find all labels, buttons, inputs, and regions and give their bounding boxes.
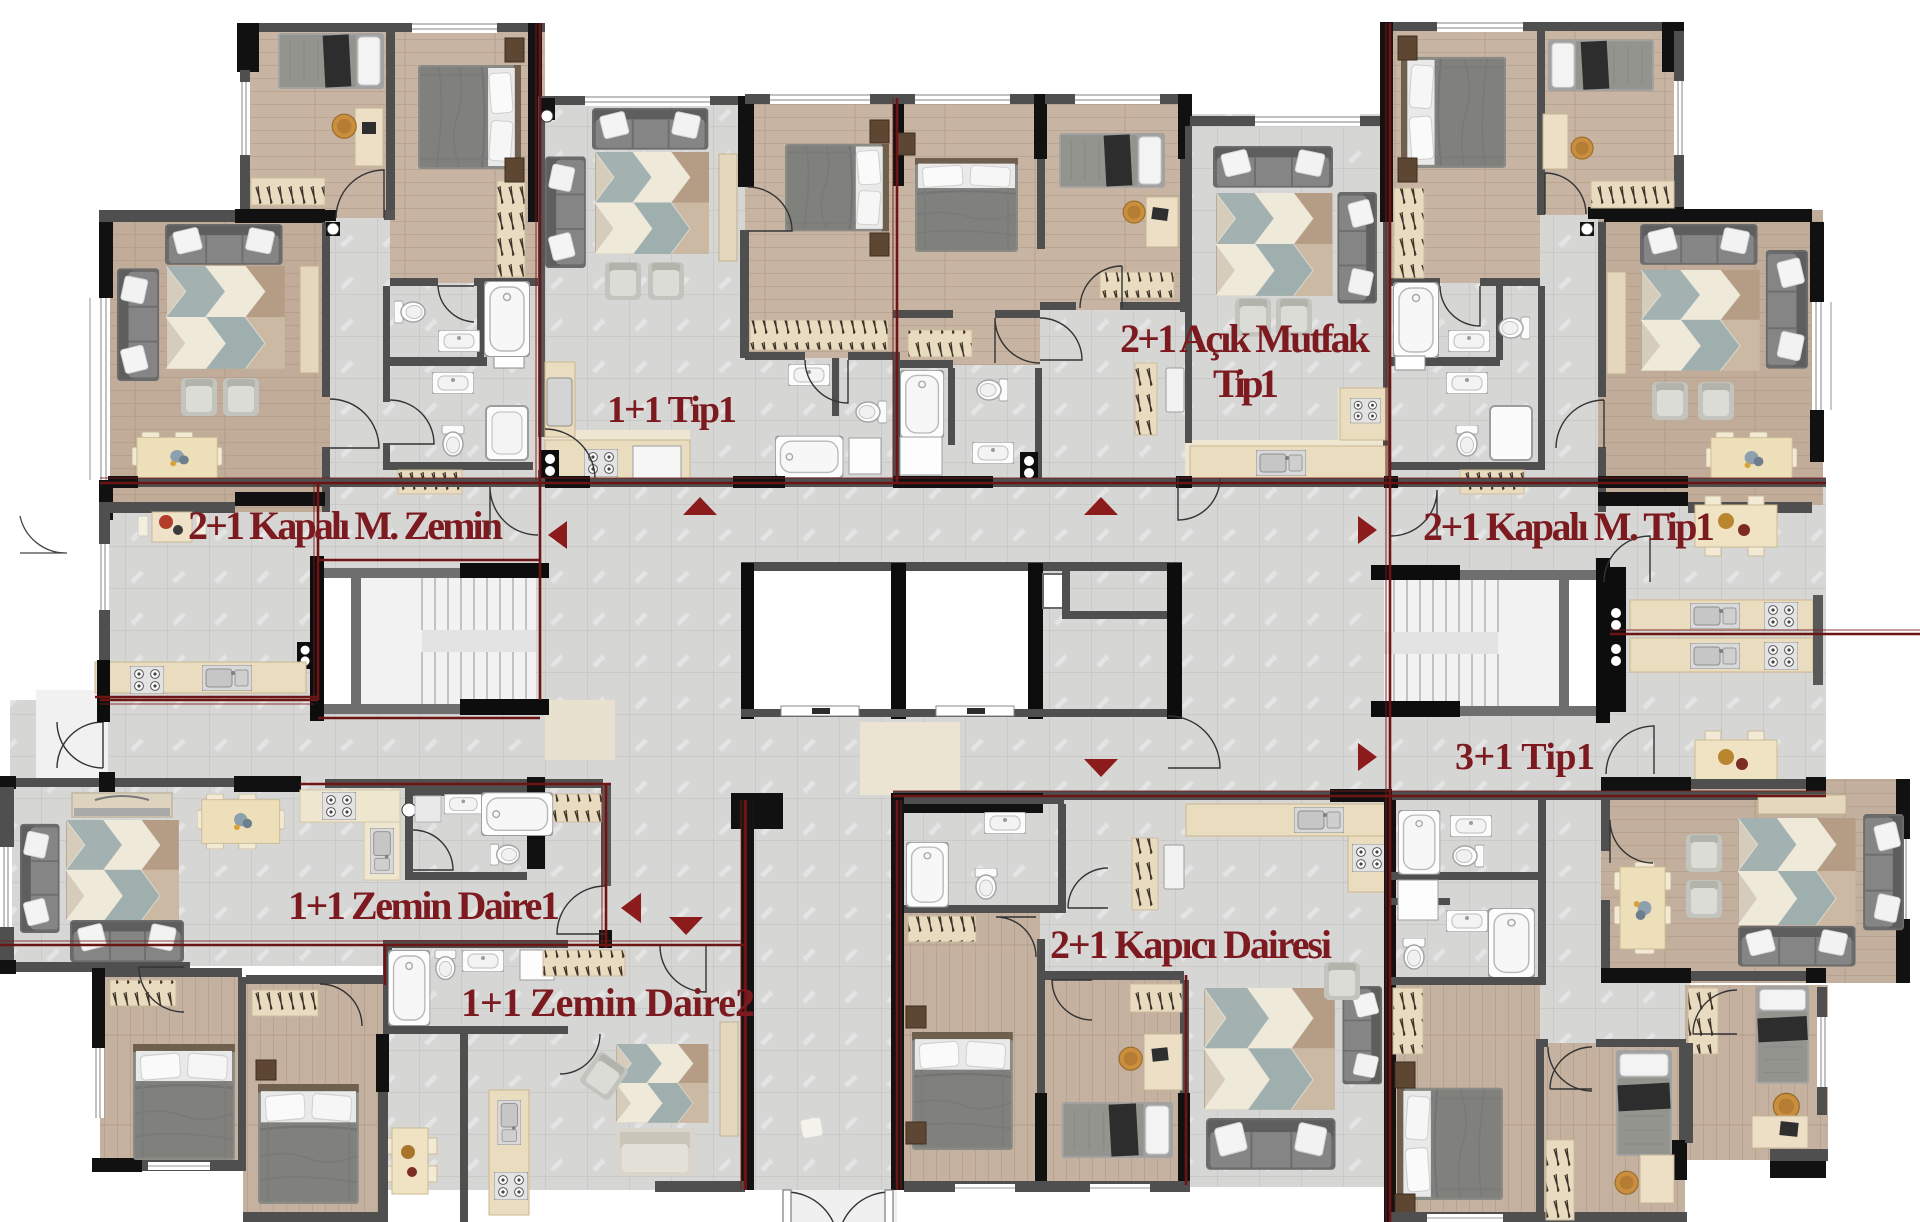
svg-text:3+1 Tip1: 3+1 Tip1 — [1455, 736, 1595, 778]
svg-text:2+1 Kapıcı Dairesi: 2+1 Kapıcı Dairesi — [1050, 922, 1332, 967]
svg-text:2+1 Kapalı M. Tip1: 2+1 Kapalı M. Tip1 — [1423, 504, 1715, 549]
svg-text:1+1 Zemin Daire2: 1+1 Zemin Daire2 — [461, 980, 755, 1025]
svg-text:1+1 Tip1: 1+1 Tip1 — [607, 389, 737, 431]
svg-text:1+1 Zemin Daire1: 1+1 Zemin Daire1 — [288, 883, 560, 928]
svg-text:Tip1: Tip1 — [1213, 361, 1279, 406]
svg-text:2+1 Açık Mutfak: 2+1 Açık Mutfak — [1120, 316, 1371, 361]
svg-text:2+1 Kapalı M. Zemin: 2+1 Kapalı M. Zemin — [188, 503, 503, 548]
